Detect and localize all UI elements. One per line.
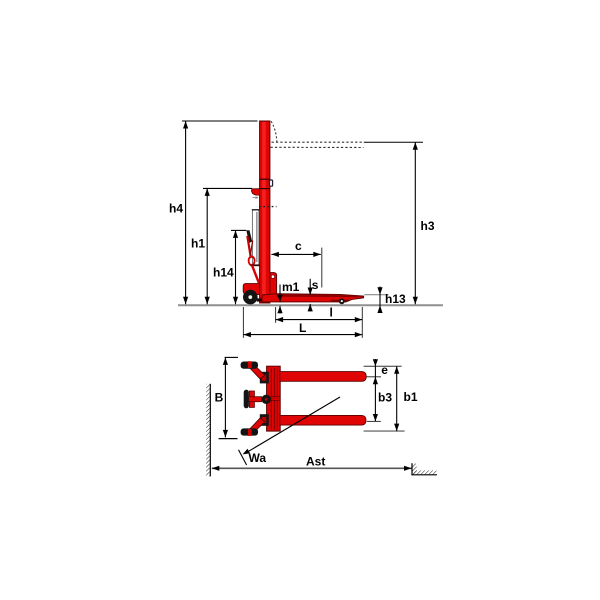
svg-text:Wa: Wa [249,451,267,465]
svg-text:L: L [299,321,306,335]
svg-text:b3: b3 [378,391,392,405]
svg-text:Ast: Ast [306,455,325,469]
svg-text:b1: b1 [404,390,418,404]
svg-text:B: B [215,390,224,404]
svg-text:h14: h14 [213,266,234,280]
svg-text:e: e [381,363,388,377]
svg-text:m1: m1 [282,280,300,294]
svg-text:h1: h1 [191,237,205,251]
svg-text:h13: h13 [385,292,406,306]
svg-text:s: s [312,278,319,292]
svg-text:h3: h3 [421,219,435,233]
svg-text:c: c [295,239,302,253]
svg-text:l: l [330,306,333,320]
svg-text:h4: h4 [169,202,183,216]
